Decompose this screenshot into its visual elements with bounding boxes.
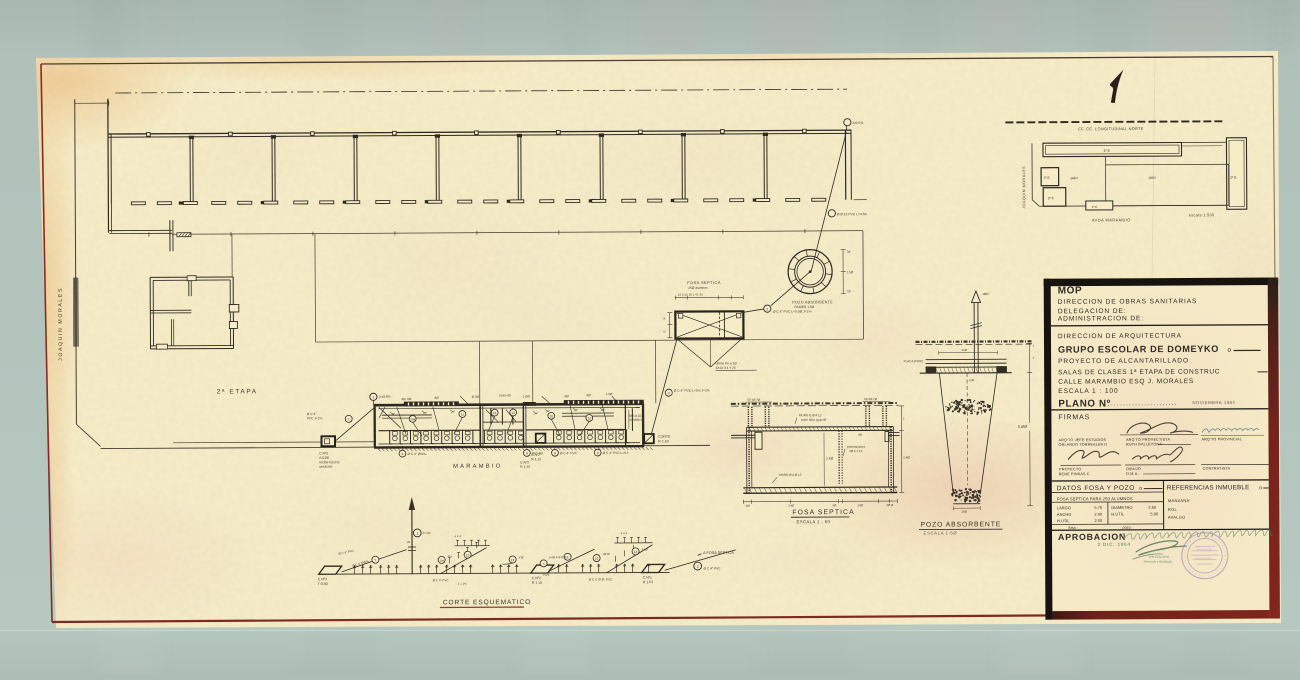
svg-text:PVC J=2%: PVC J=2%: [307, 416, 323, 420]
svg-text:R-1.63: R-1.63: [658, 439, 669, 443]
svg-text:AVALUO: AVALUO: [1168, 515, 1185, 520]
svg-text:Ø C 4" PVC: Ø C 4" PVC: [560, 451, 578, 455]
svg-text:DIRECCION DE OBRAS SANITAR: DIRECCION DE OBRAS SANITARIAS: [1058, 298, 1198, 306]
svg-text:J=1%: J=1%: [422, 531, 430, 535]
svg-text:13: 13: [511, 411, 515, 415]
svg-text:75: 75: [662, 317, 666, 321]
svg-text:PROYECTO: PROYECTO: [1059, 467, 1081, 471]
svg-text:16Ø: 16Ø: [962, 348, 968, 352]
svg-text:ARQ'TO JEFE ESTUDIOS: ARQ'TO JEFE ESTUDIOS: [1059, 438, 1107, 442]
svg-text:2.4Ø: 2.4Ø: [903, 455, 910, 459]
svg-text:1ª E: 1ª E: [1103, 149, 1110, 153]
svg-text:4Ø´Ø: 4Ø´Ø: [603, 552, 611, 556]
svg-text:10a: 10a: [439, 558, 444, 562]
svg-text:.10 2.10 .20 1.40 .25: .10 2.10 .20 1.40 .25: [677, 293, 703, 297]
svg-text:MURO E.Ø A 12: MURO E.Ø A 12: [799, 413, 822, 417]
svg-text:SANITARIAS: SANITARIAS: [1196, 556, 1212, 560]
svg-text:7Ø 4Ø 7Ø: 7Ø 4Ø 7Ø: [747, 398, 761, 402]
svg-text:PROYECTO DE ALCANTARILLADO: PROYECTO DE ALCANTARILLADO: [1058, 357, 1189, 365]
svg-text:sobre lØsa agujerØ: sobre lØsa agujerØ: [801, 418, 827, 422]
svg-text:7: 7: [348, 417, 350, 421]
svg-text:12: 12: [634, 550, 638, 554]
svg-text:1ª E: 1ª E: [1092, 205, 1098, 209]
svg-text:4 4 4´: 4 4 4´: [454, 534, 461, 538]
svg-text:J=Ø.5%: J=Ø.5%: [379, 395, 391, 399]
svg-text:5.ØØ: 5.ØØ: [1018, 425, 1027, 429]
svg-text:2: 2: [766, 307, 768, 311]
svg-text:FOSA SEPTICA: FOSA SEPTICA: [792, 509, 854, 516]
svg-text:ARQ'TO PROYECTISTA: ARQ'TO PROYECTISTA: [1126, 438, 1170, 442]
svg-text:9: 9: [668, 391, 670, 395]
svg-text:R 1.15: R 1.15: [520, 465, 530, 469]
svg-text:4´4 4´: 4´4 4´: [620, 531, 628, 535]
svg-text:.......................: .......................: [1108, 400, 1178, 407]
svg-text:1.ØØ: 1.ØØ: [523, 394, 531, 398]
svg-text:H.UTIL: H.UTIL: [1111, 512, 1124, 517]
svg-text:CONTRATISTA: CONTRATISTA: [1203, 467, 1231, 471]
svg-text:1: 1: [372, 395, 374, 399]
svg-text:2.00: 2.00: [1094, 512, 1103, 517]
svg-text:GRUPO ESCOLAR DE DOMEYKO: GRUPO ESCOLAR DE DOMEYKO: [1058, 344, 1219, 355]
svg-text:7: 7: [375, 558, 377, 562]
svg-text:RADIER 1.5Ø: RADIER 1.5Ø: [794, 305, 814, 309]
svg-text:T-0.80: T-0.80: [318, 582, 328, 586]
svg-text:DIAMETRO: DIAMETRO: [1111, 505, 1132, 510]
svg-text:J = 1%: J = 1%: [458, 582, 467, 586]
svg-text:2ª E: 2ª E: [1048, 196, 1054, 200]
svg-text:R 1.63: R 1.63: [643, 580, 653, 584]
svg-text:10a: 10a: [410, 417, 415, 421]
svg-text:12: 12: [493, 411, 497, 415]
svg-text:DIRECCION: DIRECCION: [1197, 547, 1212, 551]
svg-text:Jefe Dpto Sanit.: Jefe Dpto Sanit.: [1149, 555, 1171, 559]
svg-text:PLACA Ø Ø12: PLACA Ø Ø12: [904, 359, 924, 363]
svg-text:Revisado y Aprobado: Revisado y Aprobado: [1144, 559, 1173, 563]
svg-text:75: 75: [662, 330, 666, 334]
svg-text:CORTE ESQUEMATICO: CORTE ESQUEMATICO: [443, 599, 531, 606]
svg-text:2.5Ø: 2.5Ø: [847, 270, 854, 274]
svg-text:ROL: ROL: [1168, 507, 1178, 512]
svg-text:MURO Ø A Ø.12: MURO Ø A Ø.12: [779, 473, 802, 477]
svg-text:DELEGACION DE:: DELEGACION DE:: [1058, 308, 1127, 315]
svg-text:MARAMBIO: MARAMBIO: [453, 464, 502, 470]
svg-text:5.70: 5.70: [1094, 505, 1103, 510]
svg-text:SUM.4'Ø: SUM.4'Ø: [499, 394, 512, 398]
svg-text:POZO ABSORBENTE: POZO ABSORBENTE: [792, 300, 833, 304]
svg-text:3Ø Ø: 3Ø Ø: [886, 503, 894, 507]
svg-text:RENE PINKAS C: RENE PINKAS C: [1059, 472, 1090, 476]
svg-text:6: 6: [402, 452, 404, 456]
svg-text:1ª E: 1ª E: [1044, 176, 1050, 180]
svg-text:A: A: [1033, 344, 1035, 348]
svg-text:14Ø: 14Ø: [857, 503, 863, 507]
svg-text:PLANO Nº: PLANO Nº: [1058, 398, 1111, 409]
svg-text:3 DIC. 1964: 3 DIC. 1964: [1098, 542, 1131, 547]
svg-text:VB: VB: [407, 540, 411, 544]
svg-text:ESCALA 1 : 100: ESCALA 1 : 100: [1058, 388, 1118, 395]
svg-text:Ø C 4" PVC L=5m J=2%: Ø C 4" PVC L=5m J=2%: [674, 388, 710, 392]
svg-text:Ø C 4" PVC L=9.5Ø J=1%: Ø C 4" PVC L=9.5Ø J=1%: [773, 309, 812, 313]
svg-text:C.Nº3: C.Nº3: [318, 577, 327, 581]
svg-text:FIRMAS: FIRMAS: [1058, 414, 1090, 421]
svg-text:fosa: fosa: [1068, 526, 1076, 530]
svg-text:15Ø: 15Ø: [969, 378, 975, 382]
svg-text:C'Nº2: C'Nº2: [543, 573, 550, 577]
svg-text:servicios: servicios: [319, 465, 333, 469]
svg-text:H.UTIL: H.UTIL: [1057, 518, 1070, 523]
svg-text:pozo: pozo: [1122, 526, 1130, 530]
svg-text:C.Nº2: C.Nº2: [532, 576, 541, 580]
svg-text:FOSA SEPTICA PARA 250 ALUM: FOSA SEPTICA PARA 250 ALUMNOS: [1057, 496, 1133, 501]
svg-text:Ø C.4Ø: Ø C.4Ø: [532, 451, 543, 455]
svg-text:Ø Ø.15 PVC L=4.5m: Ø Ø.15 PVC L=4.5m: [837, 212, 868, 216]
svg-text:ESCALA 1 : 50: ESCALA 1 : 50: [796, 519, 830, 524]
svg-text:4"Ø´: 4"Ø´: [519, 555, 525, 559]
svg-text:12: 12: [588, 416, 592, 420]
svg-text:.6Ø .6Ø: .6Ø .6Ø: [401, 397, 412, 401]
svg-text:JOAQUIN MORALES: JOAQUIN MORALES: [1022, 166, 1026, 209]
svg-text:4X14 4 4 Y 25: 4X14 4 4 Y 25: [716, 366, 736, 370]
svg-text:2.00: 2.00: [1094, 518, 1103, 523]
svg-text:1.2Ø': 1.2Ø': [606, 392, 614, 396]
svg-text:13: 13: [511, 558, 515, 562]
svg-text:10: 10: [595, 557, 599, 561]
svg-text:D.M.A.: D.M.A.: [1126, 472, 1138, 476]
svg-text:25Ø alumnos: 25Ø alumnos: [688, 286, 708, 290]
svg-text:.8Ø': .8Ø': [434, 396, 440, 400]
svg-text:5: 5: [554, 451, 556, 455]
svg-text:J=0.5%: J=0.5%: [852, 121, 863, 125]
svg-text:SALAS DE CLASES 1ª ETAP: SALAS DE CLASES 1ª ETAPA DE CONSTRUC: [1058, 369, 1220, 377]
svg-text:APROBACION: APROBACION: [1058, 532, 1126, 542]
svg-text:patio: patio: [1149, 176, 1156, 180]
svg-text:2ª ETAPA: 2ª ETAPA: [217, 388, 258, 395]
svg-text:2: 2: [697, 565, 699, 569]
svg-text:3: 3: [597, 451, 599, 455]
svg-text:.6Ø': .6Ø': [586, 393, 592, 397]
svg-text:2ª E: 2ª E: [1230, 176, 1237, 180]
svg-text:Ø C 4" PVC: Ø C 4" PVC: [433, 578, 450, 582]
svg-text:ADMINISTRACION DE:: ADMINISTRACION DE:: [1058, 315, 1144, 322]
svg-text:2.50: 2.50: [1148, 505, 1157, 510]
svg-text:R 1.15: R 1.15: [532, 581, 542, 585]
svg-text:7Ø 4Ø 7Ø: 7Ø 4Ø 7Ø: [864, 397, 878, 401]
svg-text:.6Ø': .6Ø': [564, 394, 570, 398]
svg-text:DATOS FOSA Y POZO: DATOS FOSA Y POZO: [1057, 485, 1135, 492]
svg-text:o: o: [1259, 485, 1262, 491]
svg-text:Ø C 4" PVC L=9.5: Ø C 4" PVC L=9.5: [603, 451, 629, 455]
svg-text:FF. CC. LONGITUDINAL NORTE: FF. CC. LONGITUDINAL NORTE: [1078, 126, 1143, 131]
svg-text:Ø C 4" Ø·Ø´ PVC: Ø C 4" Ø·Ø´ PVC: [589, 577, 613, 581]
svg-text:o: o: [1139, 486, 1142, 492]
svg-text:15Ø: 15Ø: [961, 510, 967, 514]
svg-text:MANZANA': MANZANA': [1168, 498, 1191, 503]
svg-text:Ø 4´: Ø 4´: [448, 554, 454, 558]
svg-text:ESCALA 1:5Ø: ESCALA 1:5Ø: [923, 530, 957, 535]
svg-text:FOSA SEPTICA: FOSA SEPTICA: [687, 280, 721, 285]
svg-text:NOVIEMBRE 1964: NOVIEMBRE 1964: [1192, 400, 1235, 405]
svg-text:RUTH BALLEYONA: RUTH BALLEYONA: [1126, 442, 1162, 446]
svg-text:ultima Pe.a 2Ø: ultima Pe.a 2Ø: [716, 361, 738, 365]
svg-text:A FOSA SEPTICA: A FOSA SEPTICA: [703, 551, 734, 555]
svg-text:2.6Ø: 2.6Ø: [826, 456, 834, 460]
svg-text:CALLE MARAMBIO ESQ J. MOR: CALLE MARAMBIO ESQ J. MORALES: [1058, 378, 1194, 386]
svg-text:12: 12: [466, 553, 470, 557]
svg-text:LARGO: LARGO: [1057, 505, 1071, 510]
svg-text:patio: patio: [1071, 176, 1078, 180]
svg-text:1ØØ´: 1ØØ´: [982, 292, 989, 296]
svg-text:ANCHO: ANCHO: [1057, 512, 1071, 517]
svg-text:'.3Ø: '.3Ø: [744, 504, 750, 508]
svg-text:Ø C 4" Ø%‰: Ø C 4" Ø%‰: [407, 452, 427, 456]
svg-text:4 1Ø´: 4 1Ø´: [642, 547, 649, 551]
svg-text:DIBUJO: DIBUJO: [1126, 467, 1141, 471]
svg-text:C.Nº1: C.Nº1: [643, 576, 652, 580]
svg-text:Ø C 4" PVC: Ø C 4" PVC: [704, 566, 722, 570]
svg-text:MOP: MOP: [1058, 285, 1083, 296]
svg-text:ARQ'TO PROVINCIAL: ARQ'TO PROVINCIAL: [1202, 437, 1243, 441]
svg-text:CORTE: CORTE: [658, 435, 671, 439]
svg-text:ADMISION: ADMISION: [629, 418, 644, 422]
svg-text:4: 4: [526, 451, 528, 455]
svg-text:AVDA MARAMBIO: AVDA MARAMBIO: [1092, 217, 1131, 222]
svg-text:REFERENCIAS INMUEBLE: REFERENCIAS INMUEBLE: [1167, 484, 1250, 491]
svg-text:5.00: 5.00: [1150, 511, 1159, 516]
svg-text:DIRECCION DE ARQUITECTURA: DIRECCION DE ARQUITECTURA: [1058, 333, 1182, 341]
svg-text:ORLANDO TORREALBA D: ORLANDO TORREALBA D: [1059, 443, 1108, 447]
svg-text:escala 1:500: escala 1:500: [1189, 212, 1215, 217]
svg-text:4Ø A 4 15: 4Ø A 4 15: [849, 449, 863, 453]
svg-text:Ø.9Ø: Ø.9Ø: [472, 395, 480, 399]
svg-text:o: o: [1228, 347, 1232, 354]
svg-text:POZO ABSORBENTE: POZO ABSORBENTE: [920, 521, 1001, 528]
svg-text:11: 11: [461, 412, 464, 416]
svg-text:24Ø: 24Ø: [788, 504, 794, 508]
svg-text:1: 1: [416, 532, 418, 536]
svg-text:R-1.15: R-1.15: [531, 457, 541, 461]
svg-text:J=3Ø 4´Ø´Ø´Ø: J=3Ø 4´Ø´Ø´Ø: [549, 555, 567, 559]
svg-text:JOAQUIN MORALES: JOAQUIN MORALES: [58, 287, 64, 361]
svg-text:10: 10: [550, 414, 554, 418]
